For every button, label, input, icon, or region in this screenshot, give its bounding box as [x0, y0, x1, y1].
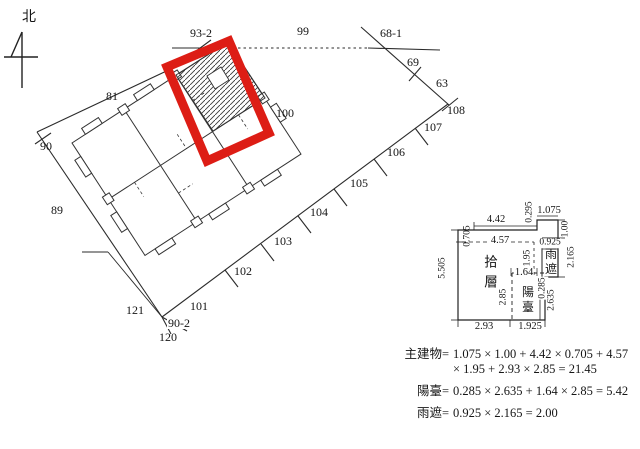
formula-balcony-row: 陽臺= 0.285 × 2.635 + 1.64 × 2.85 = 5.42: [397, 384, 628, 399]
formula-canopy-label: 雨遮=: [397, 406, 453, 421]
dim-2-635: 2.635: [547, 289, 557, 310]
formula-balcony-line: 0.285 × 2.635 + 1.64 × 2.85 = 5.42: [453, 384, 628, 399]
dim-5-505: 5.505: [438, 257, 448, 278]
lot-label-106: 106: [387, 146, 405, 158]
dim-2-93: 2.93: [475, 322, 493, 333]
lot-label-68-1: 68-1: [380, 27, 402, 39]
floor-label: 拾層: [484, 252, 498, 291]
formula-main-line1: 1.075 × 1.00 + 4.42 × 0.705 + 4.57: [453, 347, 628, 362]
dim-2-85: 2.85: [499, 289, 509, 306]
lot-label-103: 103: [274, 235, 292, 247]
survey-drawing: 北 93-2 99 68-1 69 63 81 100 108 107 106 …: [0, 0, 640, 449]
dim-1-075: 1.075: [537, 206, 561, 217]
dim-1-00: 1.00: [561, 221, 571, 238]
lot-label-101: 101: [190, 300, 208, 312]
lot-label-105: 105: [350, 177, 368, 189]
lot-label-63: 63: [436, 77, 448, 89]
lot-label-90-2: 90-2: [167, 317, 191, 329]
balcony-label: 陽臺: [522, 285, 534, 315]
lot-label-108: 108: [447, 104, 465, 116]
lot-label-107: 107: [424, 121, 442, 133]
building-cluster: [62, 32, 310, 265]
dim-0-705: 0.705: [463, 225, 473, 246]
dim-1-925: 1.925: [518, 322, 542, 333]
dim-0-295: 0.295: [525, 201, 535, 222]
dim-4-57: 4.57: [490, 236, 510, 247]
formula-main-row1: 主建物= 1.075 × 1.00 + 4.42 × 0.705 + 4.57: [397, 347, 628, 362]
lot-label-121: 121: [126, 304, 144, 316]
lot-label-120: 120: [159, 331, 177, 343]
formula-main-label: 主建物=: [397, 347, 453, 362]
lot-label-100: 100: [276, 107, 294, 119]
dim-1-64: 1.64: [514, 268, 534, 279]
lot-label-81: 81: [106, 90, 118, 102]
dim-2-165: 2.165: [567, 246, 577, 267]
north-arrow-icon: [4, 32, 38, 88]
lot-label-90: 90: [40, 140, 52, 152]
formula-balcony-label: 陽臺=: [397, 384, 453, 399]
lot-label-102: 102: [234, 265, 252, 277]
dim-1-95: 1.95: [523, 250, 533, 267]
formula-main-line2: × 1.95 + 2.93 × 2.85 = 21.45: [453, 362, 597, 377]
dim-4-42: 4.42: [487, 215, 505, 226]
area-formulas: 主建物= 1.075 × 1.00 + 4.42 × 0.705 + 4.57 …: [397, 347, 628, 421]
north-label: 北: [22, 11, 36, 25]
formula-canopy-row: 雨遮= 0.925 × 2.165 = 2.00: [397, 406, 628, 421]
canopy-label: 雨遮: [545, 247, 557, 277]
formula-canopy-line: 0.925 × 2.165 = 2.00: [453, 406, 558, 421]
lot-label-69: 69: [407, 56, 419, 68]
lot-label-104: 104: [310, 206, 328, 218]
lot-label-99: 99: [297, 25, 309, 37]
lot-label-93-2: 93-2: [190, 27, 212, 39]
lot-label-89: 89: [51, 204, 63, 216]
formula-main-row2: × 1.95 + 2.93 × 2.85 = 21.45: [397, 362, 628, 377]
